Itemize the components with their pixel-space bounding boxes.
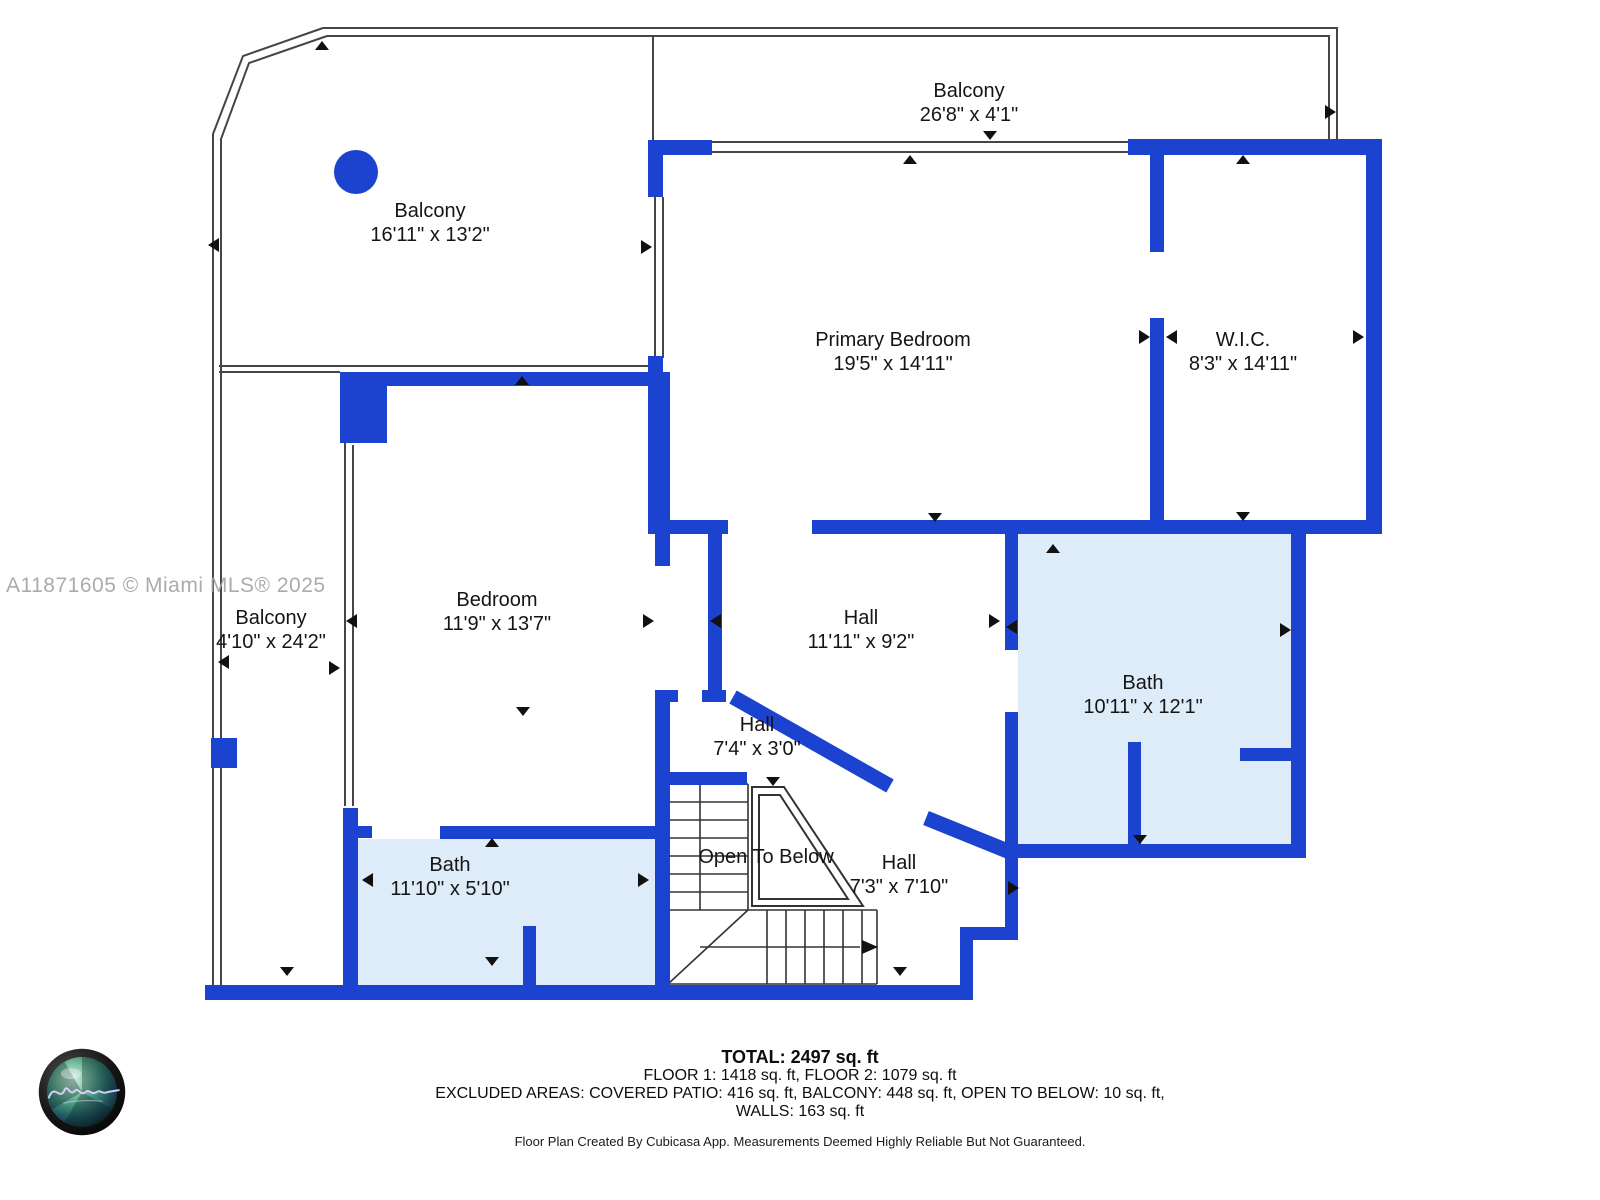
wall-wic-right — [1366, 139, 1382, 534]
room-name: W.I.C. — [1216, 329, 1270, 351]
room-dims: 4'10" x 24'2" — [216, 630, 326, 654]
room-label-bath-main: Bath 10'11" x 12'1" — [1083, 671, 1202, 719]
wall-small-bath-top — [440, 826, 655, 839]
wall-small-bath-inner — [523, 926, 536, 985]
room-dims: 26'8" x 4'1" — [920, 103, 1019, 127]
room-label-hall-main: Hall 11'11" x 9'2" — [808, 606, 915, 654]
room-name: Hall — [740, 714, 774, 736]
balcony-column-circle — [334, 150, 378, 194]
floor-areas-text: FLOOR 1: 1418 sq. ft, FLOOR 2: 1079 sq. … — [0, 1067, 1600, 1085]
wall-hall-divider — [708, 534, 722, 690]
room-label-open-to-below: Open To Below — [698, 845, 833, 869]
room-label-hall-lower: Hall 7'3" x 7'10" — [850, 851, 949, 899]
room-label-bath-small: Bath 11'10" x 5'10" — [390, 853, 509, 901]
room-name: Open To Below — [698, 846, 833, 868]
room-dims: 7'4" x 3'0" — [713, 737, 800, 761]
room-name: Balcony — [394, 200, 465, 222]
room-dims: 16'11" x 13'2" — [370, 223, 489, 247]
wall-main-bath-left-lower — [1005, 712, 1018, 844]
wall-wic-left-lower — [1150, 318, 1164, 534]
room-name: Bath — [1122, 672, 1163, 694]
room-label-hall-small: Hall 7'4" x 3'0" — [713, 713, 800, 761]
wall-small-hall-top-a — [655, 690, 678, 702]
wall-angled-lower — [926, 818, 1010, 852]
room-label-balcony-top-left: Balcony 16'11" x 13'2" — [370, 199, 489, 247]
area-summary: TOTAL: 2497 sq. ft FLOOR 1: 1418 sq. ft,… — [0, 1048, 1600, 1149]
wall-stairwell-left — [655, 785, 670, 985]
room-dims: 11'10" x 5'10" — [390, 877, 509, 901]
wall-main-bath-stub-v — [1128, 742, 1141, 844]
room-label-balcony-top: Balcony 26'8" x 4'1" — [920, 79, 1019, 127]
mls-watermark: A11871605 © Miami MLS® 2025 — [6, 574, 326, 598]
room-name: Balcony — [933, 80, 1004, 102]
room-name: Hall — [844, 607, 878, 629]
room-name: Bath — [429, 854, 470, 876]
room-dims: 8'3" x 14'11" — [1189, 352, 1297, 376]
room-label-balcony-left: Balcony 4'10" x 24'2" — [216, 606, 326, 654]
wall-bedroom-corner-block — [340, 372, 387, 443]
balcony-column-block — [211, 738, 237, 768]
wall-bottom — [205, 985, 973, 1000]
excluded-areas-text: EXCLUDED AREAS: COVERED PATIO: 416 sq. f… — [0, 1085, 1600, 1103]
room-dims: 19'5" x 14'11" — [815, 352, 971, 376]
floor-plan-drawing — [0, 0, 1600, 1200]
wall-wic-top — [1128, 139, 1382, 155]
room-name: Primary Bedroom — [815, 329, 971, 351]
walls-area-text: WALLS: 163 sq. ft — [0, 1103, 1600, 1121]
floor-plan-page: Balcony 16'11" x 13'2" Balcony 26'8" x 4… — [0, 0, 1600, 1200]
wall-small-bath-stub — [358, 826, 372, 838]
room-dims: 10'11" x 12'1" — [1083, 695, 1202, 719]
wall-main-bath-bottom — [1005, 844, 1306, 858]
room-label-wic: W.I.C. 8'3" x 14'11" — [1189, 328, 1297, 376]
room-name: Hall — [882, 852, 916, 874]
wall-bedroom-right — [655, 386, 670, 566]
wall-small-hall-left — [655, 690, 670, 785]
room-dims: 11'9" x 13'7" — [443, 612, 551, 636]
room-label-bedroom: Bedroom 11'9" x 13'7" — [443, 588, 551, 636]
wall-main-bath-stub-h — [1240, 748, 1291, 761]
wall-hall-top-right — [812, 520, 1366, 534]
room-name: Bedroom — [456, 589, 537, 611]
total-area-text: TOTAL: 2497 sq. ft — [0, 1048, 1600, 1067]
room-dims: 11'11" x 9'2" — [808, 630, 915, 654]
room-name: Balcony — [235, 607, 306, 629]
wall-small-bath-left — [343, 808, 358, 985]
wall-bedroom-top — [340, 372, 670, 386]
wall-main-bath-right — [1291, 534, 1306, 844]
room-dims: 7'3" x 7'10" — [850, 875, 949, 899]
wall-wic-left-upper — [1150, 155, 1164, 252]
cubicasa-disclaimer: Floor Plan Created By Cubicasa App. Meas… — [0, 1135, 1600, 1149]
wall-small-hall-top-b — [702, 690, 726, 702]
wall-primary-left-upper — [648, 140, 663, 197]
wall-stairwell-top — [655, 772, 747, 785]
room-label-primary-bedroom: Primary Bedroom 19'5" x 14'11" — [815, 328, 971, 376]
